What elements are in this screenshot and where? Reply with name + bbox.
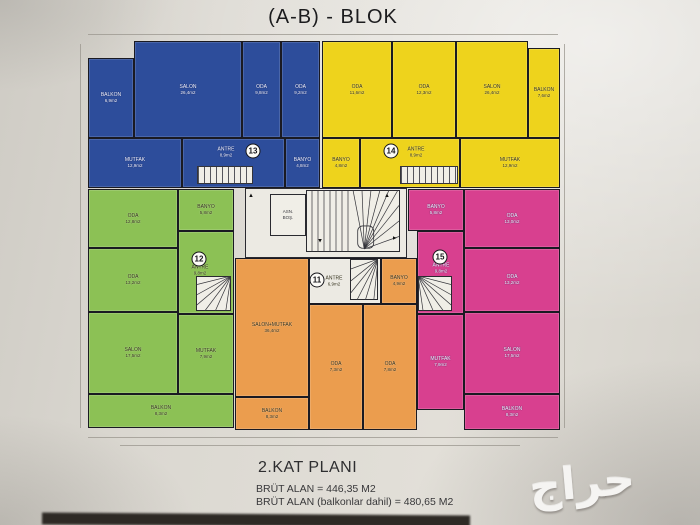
- room-label: BALKON8,3m2: [151, 405, 171, 416]
- room-13-oda-2: ODA9,2m2: [281, 41, 320, 138]
- room-label: ANTRE6,9m2: [326, 275, 343, 286]
- dimension-line: [120, 445, 520, 446]
- room-15-salon: SALON17,5m2: [464, 312, 560, 394]
- room-15-balkon: BALKON8,3m2: [464, 394, 560, 430]
- room-label: MUTFAK12,9m2: [500, 157, 520, 168]
- apartment-number-12: 12: [192, 252, 207, 267]
- door-arrow: ▲: [248, 193, 254, 199]
- room-12-banyo: BANYO5,8m2: [178, 189, 234, 231]
- room-label: BANYO4,8m2: [332, 157, 350, 168]
- room-label: SALON17,5m2: [125, 347, 142, 358]
- winder-staircase: [196, 276, 231, 311]
- room-label: ODA7,3m2: [330, 361, 343, 372]
- room-label: BANYO5,8m2: [427, 204, 445, 215]
- room-label: ODA13,2m2: [125, 274, 140, 285]
- table-surface-edge: [42, 513, 470, 525]
- apartment-number-13: 13: [246, 144, 261, 159]
- room-12-mutfak: MUTFAK7,9m2: [178, 314, 234, 394]
- room-label: SALON26,4m2: [180, 84, 197, 95]
- room-11-salon-mutfak: SALON+MUTFAK36,4m2: [235, 258, 309, 397]
- room-15-banyo: BANYO5,8m2: [408, 189, 464, 231]
- apartment-number-11: 11: [310, 273, 325, 288]
- room-14-balkon: BALKON7,6m2: [528, 48, 560, 138]
- door-arrow: ▲: [317, 237, 323, 243]
- elevator-shaft: ASN. BOŞ.: [270, 194, 306, 236]
- room-label: ODA11,6m2: [350, 84, 365, 95]
- room-12-oda-2: ODA13,2m2: [88, 248, 178, 312]
- room-label: ODA9,2m2: [294, 84, 307, 95]
- room-14-salon: SALON26,4m2: [456, 41, 528, 138]
- room-label: BANYO5,8m2: [197, 204, 215, 215]
- room-15-mutfak: MUTFAK7,9m2: [417, 314, 464, 410]
- room-label: ODA13,2m2: [504, 274, 519, 285]
- floor-plan-drawing: ASN. BOŞ. BALKON6,9m2SALON26,4m2ODA9,8m2…: [0, 0, 700, 525]
- staircase: [400, 166, 458, 184]
- room-label: BALKON8,3m2: [262, 408, 282, 419]
- room-label: ODA7,8m2: [384, 361, 397, 372]
- dimension-line: [80, 44, 81, 428]
- room-label: ODA13,0m2: [504, 213, 519, 224]
- elevator-label: BOŞ.: [283, 215, 294, 221]
- room-label: ANTRE8,9m2: [218, 146, 235, 157]
- room-label: SALON17,5m2: [504, 347, 521, 358]
- staircase: [197, 166, 253, 184]
- room-label: BALKON7,6m2: [534, 87, 554, 98]
- floor-label: 2.KAT PLANI: [258, 459, 357, 477]
- room-label: ODA9,8m2: [255, 84, 268, 95]
- room-13-banyo: BANYO4,8m2: [285, 138, 320, 188]
- room-14-banyo: BANYO4,8m2: [322, 138, 360, 188]
- room-label: SALON+MUTFAK36,4m2: [252, 322, 292, 333]
- room-label: SALON26,4m2: [484, 84, 501, 95]
- floor-plan-photo: (A-B) - BLOK ASN. BOŞ. BALKON6,9m2SALON2…: [0, 0, 700, 525]
- winder-staircase: [418, 276, 452, 311]
- room-13-balkon: BALKON6,9m2: [88, 58, 134, 138]
- gross-area-with-balconies-note: BRÜT ALAN (balkonlar dahil) = 480,65 M2: [256, 496, 453, 508]
- apartment-number-15: 15: [433, 250, 448, 265]
- room-14-oda-1: ODA11,6m2: [322, 41, 392, 138]
- room-12-oda-1: ODA12,8m2: [88, 189, 178, 248]
- dimension-line: [88, 34, 558, 35]
- door-arrow: ▲: [384, 193, 390, 199]
- room-label: MUTFAK7,9m2: [196, 348, 216, 359]
- room-label: BANYO4,9m2: [390, 275, 408, 286]
- room-14-mutfak: MUTFAK12,9m2: [460, 138, 560, 188]
- room-14-oda-2: ODA12,3m2: [392, 41, 456, 138]
- room-label: BALKON8,3m2: [502, 406, 522, 417]
- room-label: ANTRE8,9m2: [408, 146, 425, 157]
- room-11-banyo: BANYO4,9m2: [381, 258, 417, 304]
- room-13-mutfak: MUTFAK12,9m2: [88, 138, 182, 188]
- room-15-oda-2: ODA13,2m2: [464, 248, 560, 312]
- dimension-line: [564, 44, 565, 428]
- dimension-line: [88, 437, 558, 438]
- room-label: ODA12,3m2: [416, 84, 431, 95]
- room-label: ODA12,8m2: [125, 213, 140, 224]
- room-11-oda-2: ODA7,8m2: [363, 304, 417, 430]
- door-arrow: ▲: [391, 235, 397, 241]
- room-label: BANYO4,8m2: [294, 157, 312, 168]
- room-13-oda-1: ODA9,8m2: [242, 41, 281, 138]
- apartment-number-14: 14: [384, 144, 399, 159]
- room-12-balkon: BALKON8,3m2: [88, 394, 234, 428]
- room-11-oda-1: ODA7,3m2: [309, 304, 363, 430]
- room-label: MUTFAK7,9m2: [430, 356, 450, 367]
- room-15-oda-1: ODA13,0m2: [464, 189, 560, 248]
- winder-staircase: [350, 259, 378, 300]
- gross-area-note: BRÜT ALAN = 446,35 M2: [256, 483, 376, 495]
- room-13-salon: SALON26,4m2: [134, 41, 242, 138]
- room-11-balkon: BALKON8,3m2: [235, 397, 309, 430]
- room-label: MUTFAK12,9m2: [125, 157, 145, 168]
- room-label: BALKON6,9m2: [101, 92, 121, 103]
- room-12-salon: SALON17,5m2: [88, 312, 178, 394]
